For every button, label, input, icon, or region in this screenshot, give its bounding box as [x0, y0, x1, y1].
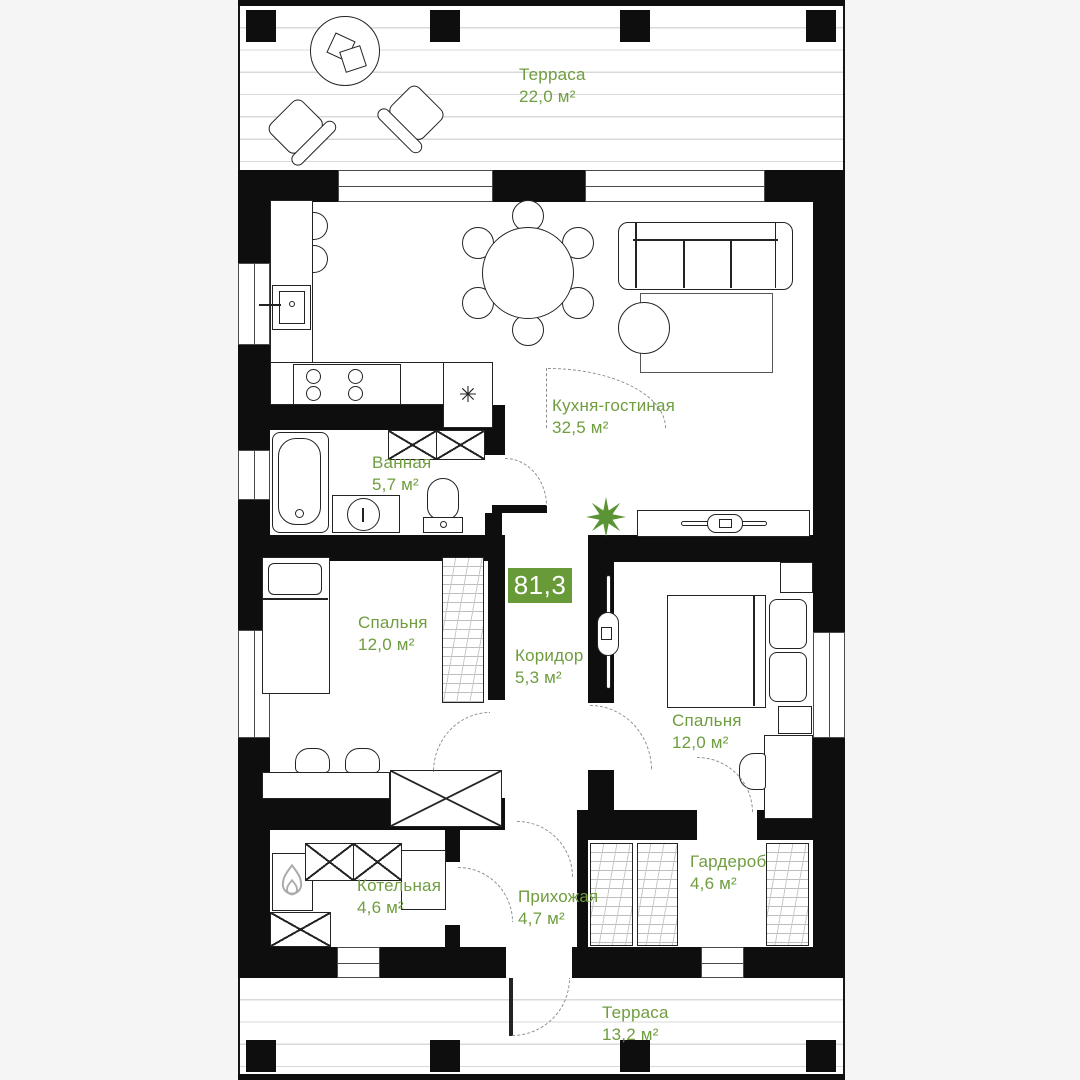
- cabinet: [390, 770, 502, 827]
- room-name: Коридор: [515, 645, 584, 667]
- terrace-post: [246, 10, 276, 42]
- sofa: [618, 222, 793, 290]
- coffee-table: [618, 302, 670, 354]
- stove-burner: [306, 369, 321, 384]
- mattress-line: [753, 596, 755, 706]
- terrace-post: [806, 1040, 836, 1072]
- wardrobe-closet: [766, 843, 809, 946]
- bathroom-cabinet: [436, 430, 485, 460]
- wall-boiler-right-bottom: [445, 925, 460, 947]
- tv-console: [637, 510, 810, 537]
- room-name: Прихожая: [518, 886, 598, 908]
- sofa-armrest: [775, 223, 777, 288]
- bed-double: [667, 595, 766, 708]
- room-name: Терраса: [519, 64, 586, 86]
- room-name: Ванная: [372, 452, 431, 474]
- toilet-flush: [440, 521, 447, 528]
- kitchen-sink-basin: [279, 291, 305, 324]
- terrace-post: [246, 1040, 276, 1072]
- wall-wardrobe-top-left: [588, 810, 697, 840]
- blanket-line: [263, 598, 328, 600]
- terrace-post: [806, 10, 836, 42]
- pillow: [769, 599, 807, 649]
- nightstand: [778, 706, 812, 734]
- cabinet: [305, 843, 354, 881]
- dining-table: [482, 227, 574, 319]
- pillow: [268, 563, 322, 595]
- room-label-wardrobe: Гардероб 4,6 м²: [690, 851, 766, 896]
- wall-bathroom-nub: [485, 513, 502, 535]
- pillow: [769, 652, 807, 702]
- window: [585, 170, 765, 202]
- room-area: 4,6 м²: [357, 897, 441, 919]
- sink-faucet-knob: [289, 301, 295, 307]
- room-label-corridor: Коридор 5,3 м²: [515, 645, 584, 690]
- sofa-seat-divider: [730, 239, 732, 288]
- room-area: 4,6 м²: [690, 873, 766, 895]
- sofa-seat-divider: [683, 239, 685, 288]
- stove-burner: [306, 386, 321, 401]
- fridge-snowflake-icon: ✳: [459, 382, 477, 408]
- room-label-kitchen-living: Кухня-гостиная 32,5 м²: [552, 395, 675, 440]
- desk-chair: [345, 748, 380, 773]
- wall-corridor-bedroom2-nub: [588, 770, 614, 810]
- total-area-badge: 81,3: [508, 568, 572, 603]
- room-area: 13,2 м²: [602, 1024, 669, 1046]
- bed-single: [262, 557, 330, 694]
- room-area: 4,7 м²: [518, 908, 598, 930]
- room-name: Спальня: [358, 612, 428, 634]
- window: [338, 170, 493, 202]
- floor-plan: ✳: [0, 0, 1080, 1080]
- fridge: ✳: [443, 362, 493, 428]
- desk: [764, 735, 813, 819]
- room-name: Котельная: [357, 875, 441, 897]
- room-label-terrace-bottom: Терраса 13,2 м²: [602, 1002, 669, 1047]
- wall-mid-right: [588, 535, 845, 562]
- room-area: 12,0 м²: [358, 634, 428, 656]
- terrace-post: [430, 10, 460, 42]
- wardrobe-closet: [442, 557, 484, 703]
- room-area: 22,0 м²: [519, 86, 586, 108]
- entrance-opening: [506, 947, 572, 978]
- washbasin-tap: [362, 508, 364, 522]
- room-label-bedroom-left: Спальня 12,0 м²: [358, 612, 428, 657]
- terrace-post: [430, 1040, 460, 1072]
- room-label-boiler: Котельная 4,6 м²: [357, 875, 441, 920]
- wardrobe-closet: [637, 843, 678, 946]
- room-name: Терраса: [602, 1002, 669, 1024]
- room-area: 12,0 м²: [672, 732, 742, 754]
- toilet-bowl: [427, 478, 459, 520]
- room-label-bathroom: Ванная 5,7 м²: [372, 452, 431, 497]
- room-label-terrace-top: Терраса 22,0 м²: [519, 64, 586, 109]
- cabinet: [270, 912, 331, 947]
- window: [238, 450, 270, 500]
- wall-exterior-right: [813, 170, 845, 978]
- plant-icon: [586, 497, 626, 537]
- stove-burner: [348, 369, 363, 384]
- room-label-hallway: Прихожая 4,7 м²: [518, 886, 598, 931]
- sofa-armrest: [635, 223, 637, 288]
- room-name: Спальня: [672, 710, 742, 732]
- room-area: 5,7 м²: [372, 474, 431, 496]
- nightstand: [780, 562, 813, 593]
- desk-chair: [295, 748, 330, 773]
- room-area: 32,5 м²: [552, 417, 675, 439]
- window: [701, 947, 744, 978]
- room-area: 5,3 м²: [515, 667, 584, 689]
- terrace-post: [620, 10, 650, 42]
- stove-burner: [348, 386, 363, 401]
- flame-icon: [277, 860, 307, 904]
- sink-faucet: [259, 304, 281, 306]
- bathtub: [272, 432, 329, 533]
- tv-stand-inner: [719, 519, 732, 528]
- terrace-bottom-edge: [238, 1074, 845, 1080]
- tv-wall-unit: [597, 572, 621, 692]
- sofa-back-line: [633, 239, 778, 241]
- wall-boiler-right-top: [445, 830, 460, 862]
- door-leaf: [546, 368, 547, 428]
- window: [813, 632, 845, 738]
- bathtub-drain: [295, 509, 304, 518]
- wall-bedroom1-right: [488, 560, 505, 700]
- window: [337, 947, 380, 978]
- desk: [262, 772, 390, 799]
- terrace-top-edge: [238, 0, 845, 6]
- tv-stand-inner: [601, 627, 612, 640]
- room-label-bedroom-right: Спальня 12,0 м²: [672, 710, 742, 755]
- wall-bathroom-door-frame: [492, 505, 547, 513]
- room-name: Кухня-гостиная: [552, 395, 675, 417]
- room-name: Гардероб: [690, 851, 766, 873]
- kitchen-counter-left: [270, 200, 313, 368]
